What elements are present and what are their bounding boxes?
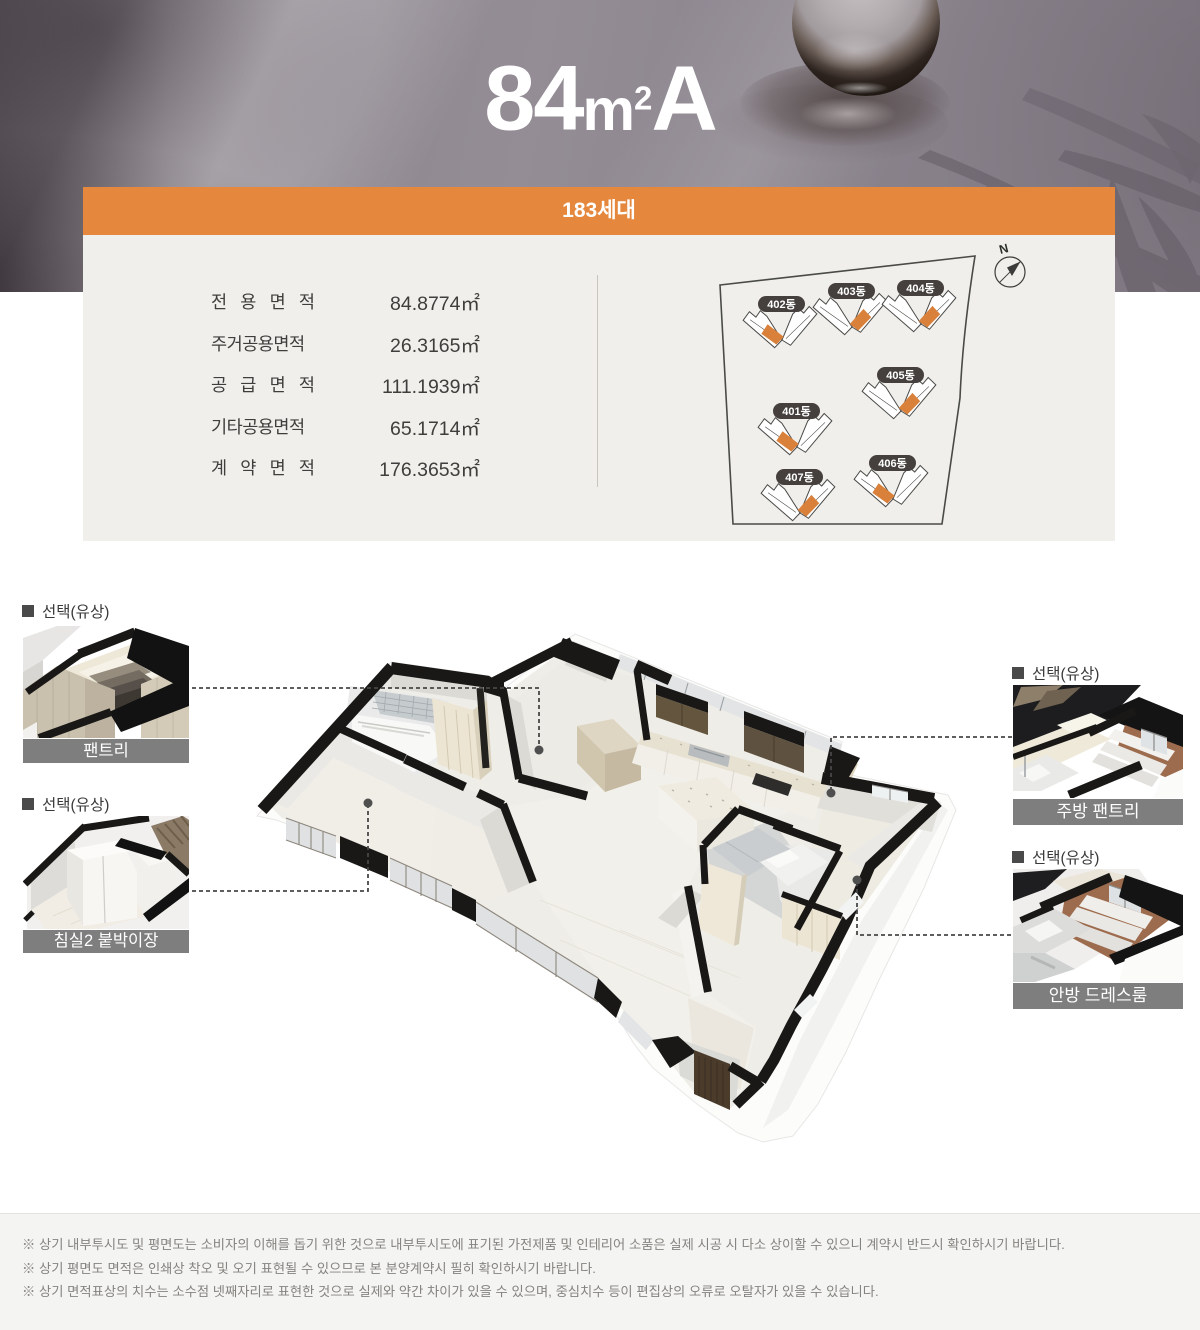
svg-text:406동: 406동 bbox=[878, 457, 906, 470]
svg-text:N: N bbox=[998, 241, 1010, 257]
svg-text:405동: 405동 bbox=[886, 369, 914, 382]
svg-text:403동: 403동 bbox=[837, 285, 865, 298]
svg-text:407동: 407동 bbox=[785, 471, 813, 484]
svg-text:404동: 404동 bbox=[906, 282, 934, 295]
svg-text:401동: 401동 bbox=[782, 405, 810, 418]
svg-text:402동: 402동 bbox=[767, 298, 795, 311]
